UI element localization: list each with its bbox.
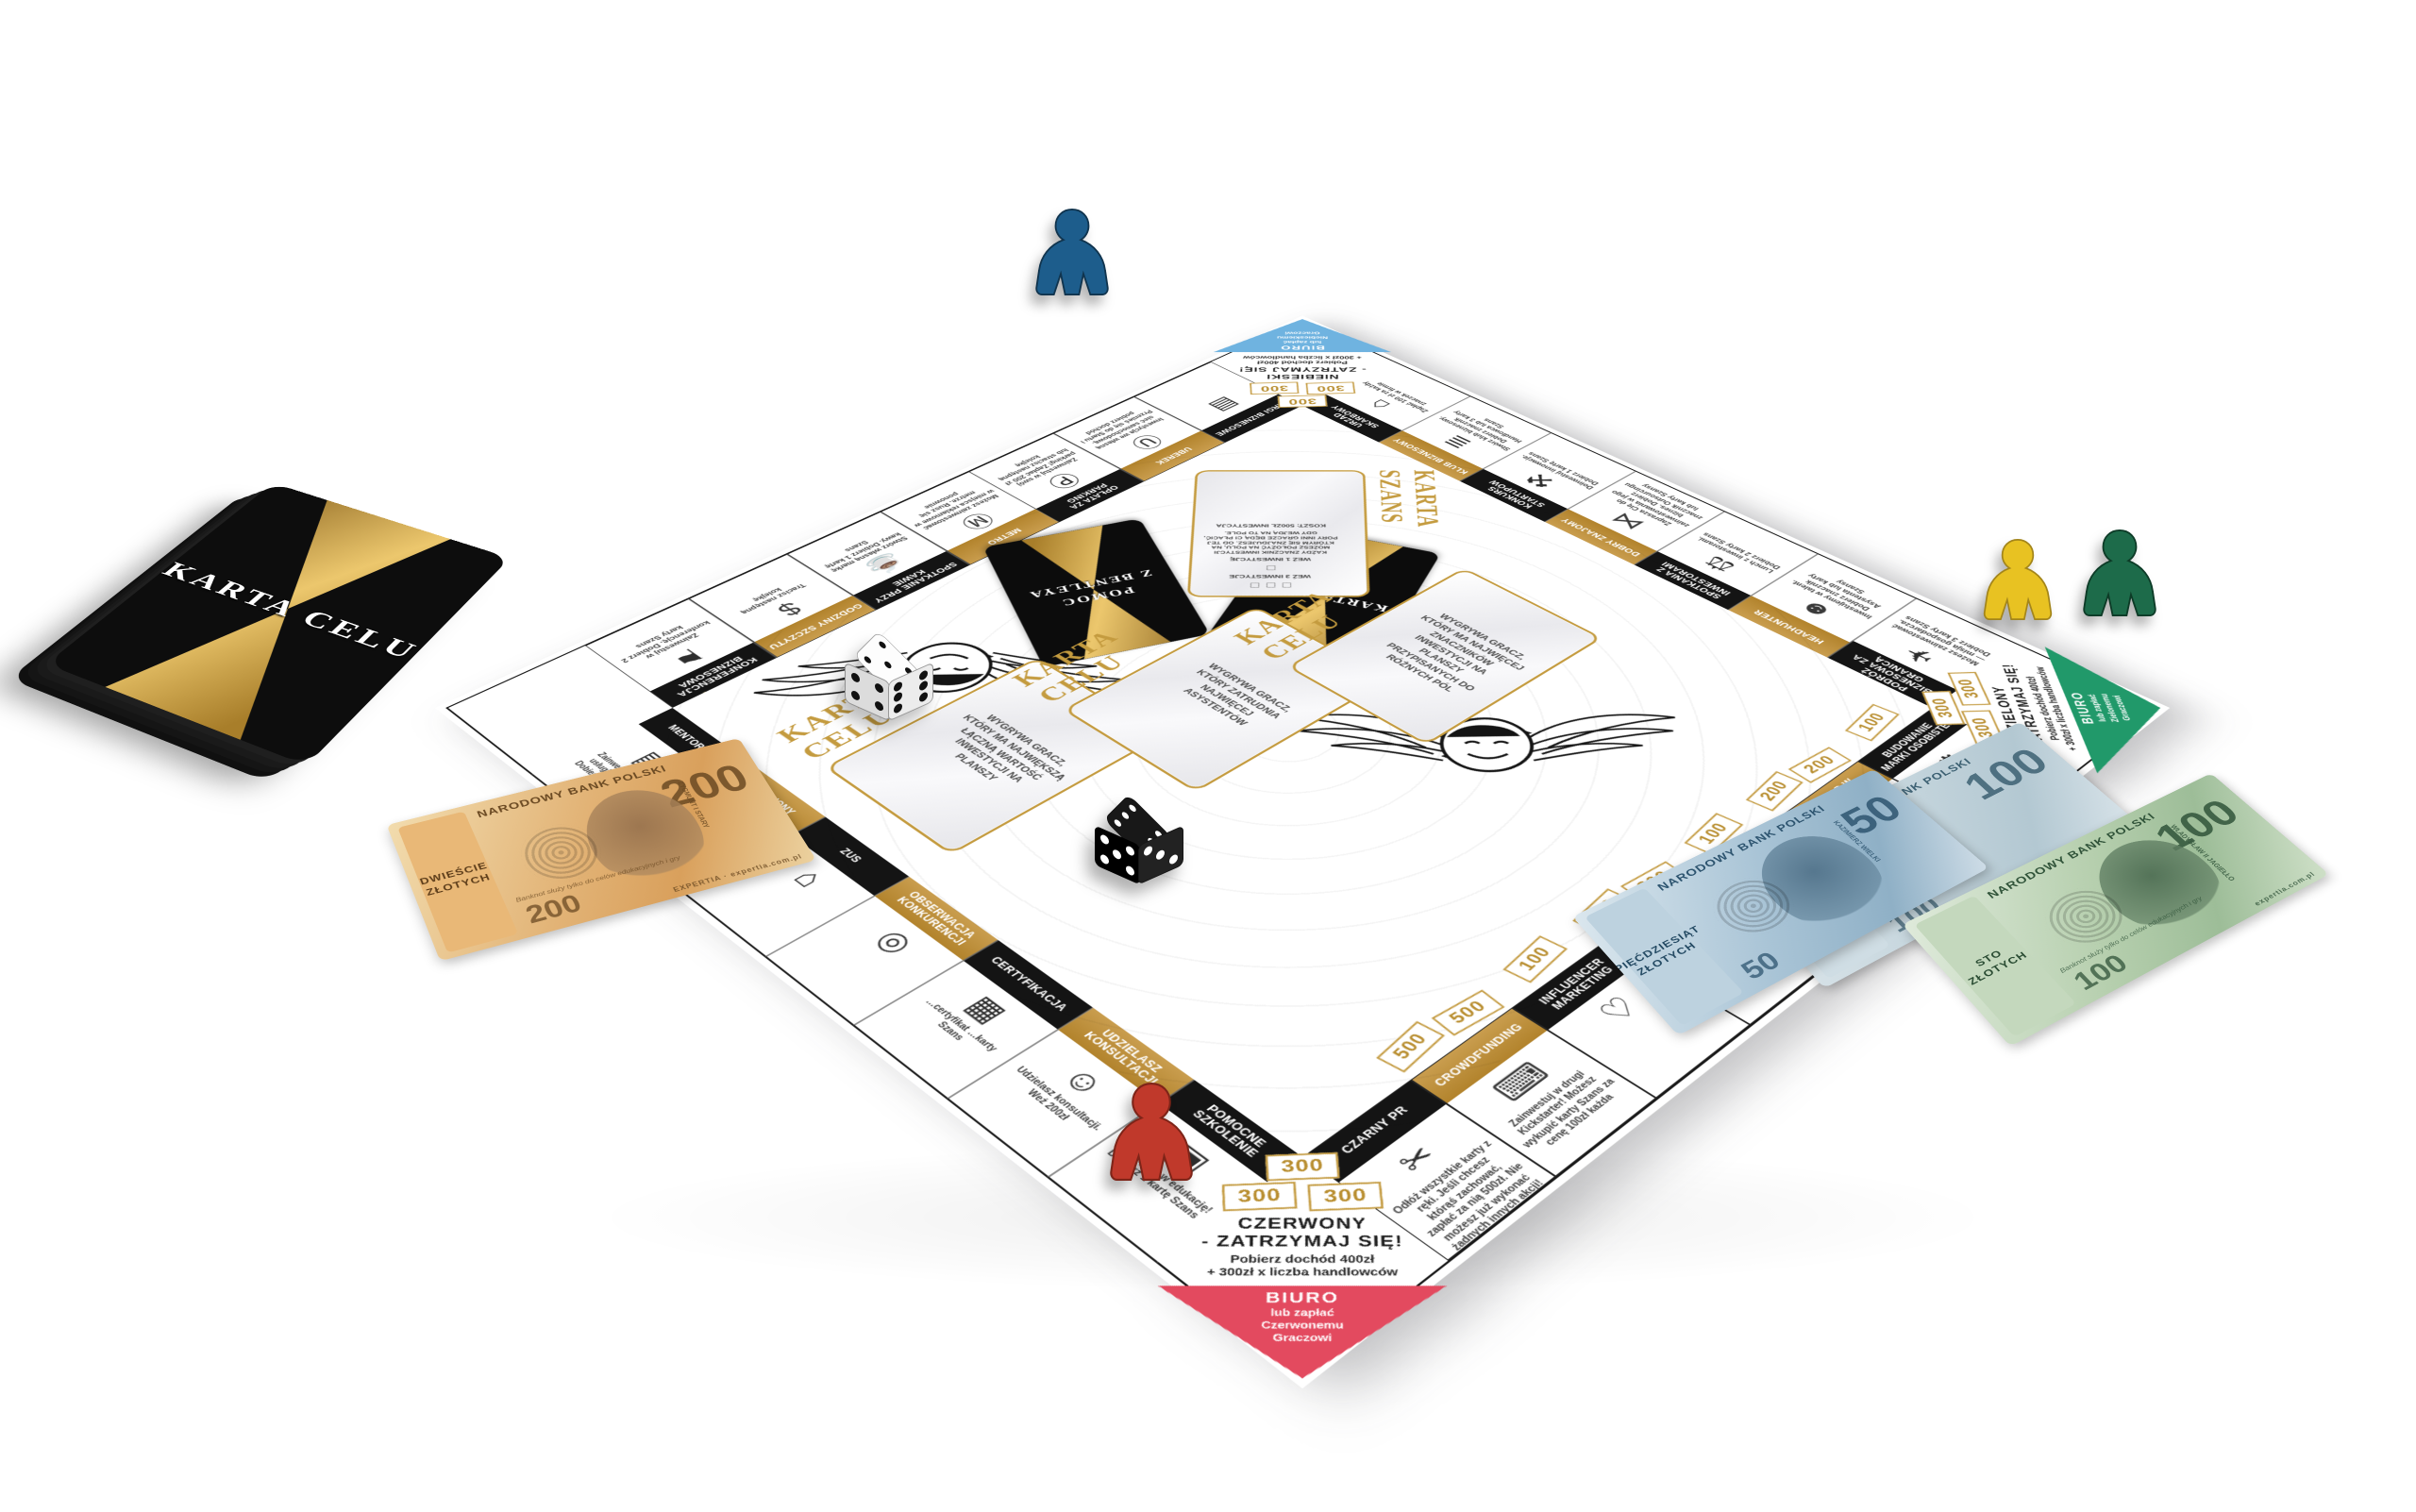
biuro-pay: lub zapłać Niebieskiemu Graczowi bbox=[1214, 330, 1391, 344]
biuro-label: BIURO bbox=[1156, 1290, 1449, 1307]
szans-line: WEŹ 1 INWESTYCJĘ bbox=[1230, 557, 1311, 562]
corner-title: CZERWONY - ZATRZYMAJ SIĘ! bbox=[1201, 1215, 1403, 1250]
board-center: POMOC Z BENTLEYA KARTA CELU KARTA SZANS … bbox=[672, 406, 1932, 1157]
red-meeple[interactable] bbox=[1102, 1076, 1200, 1187]
value-badge: 300 bbox=[1221, 1182, 1297, 1211]
denomination-text: DWIEŚCIE ZŁOTYCH bbox=[397, 812, 518, 953]
corner-niebieski-biuro[interactable]: 300 300 300 NIEBIESKI - ZATRZYMAJ SIĘ! P… bbox=[1211, 321, 1393, 406]
yellow-meeple[interactable] bbox=[1977, 533, 2058, 626]
value-badge: 300 bbox=[1307, 1182, 1384, 1211]
value-badges: 300 300 300 bbox=[1221, 1153, 1383, 1210]
investment-square-icon: □ bbox=[1265, 563, 1275, 572]
szans-body: KAŻDY ZNACZNIK INWESTYCJI MOŻESZ POŁOŻYĆ… bbox=[1201, 530, 1340, 555]
value-badges: 300 300 300 bbox=[1250, 382, 1356, 407]
note-value: 100 bbox=[2067, 949, 2135, 997]
deck-title: KARTA CELU bbox=[46, 483, 511, 765]
note-value: 50 bbox=[1830, 787, 1913, 843]
tabletop-scene: KONFERENCJA BIZNESOWA ⚑ Zainwestuj w kon… bbox=[0, 0, 2416, 1444]
corner-title: NIEBIESKI - ZATRZYMAJ SIĘ! bbox=[1238, 366, 1367, 380]
biuro-triangle: BIURO lub zapłać Niebieskiemu Graczowi bbox=[1213, 319, 1391, 352]
biuro-pay: lub zapłać Czerwonemu Graczowi bbox=[1154, 1307, 1451, 1345]
winged-face-logo bbox=[1280, 704, 1703, 789]
karta-celu-deck[interactable]: KARTA CELU bbox=[46, 483, 511, 765]
value-badge: 300 bbox=[1250, 382, 1300, 395]
value-badge: 300 bbox=[1305, 382, 1355, 395]
note-value: 100 bbox=[1953, 740, 2059, 808]
szans-cost: KOSZT: 500ZŁ INWESTYCJA bbox=[1216, 523, 1326, 528]
slot-label: KARTA SZANS bbox=[1372, 470, 1450, 563]
corner-czerwony-biuro[interactable]: 300 300 300 CZERWONY - ZATRZYMAJ SIĘ! Po… bbox=[1157, 1157, 1449, 1374]
value-badge: 300 bbox=[1265, 1152, 1340, 1182]
note-value: 50 bbox=[1735, 947, 1787, 985]
value-badge: 300 bbox=[1277, 395, 1327, 408]
investment-squares-icon: □ □ □ bbox=[1249, 580, 1291, 589]
szans-line: WEŹ 3 INWESTYCJE bbox=[1229, 574, 1311, 579]
biuro-label: BIURO bbox=[1214, 344, 1392, 351]
green-meeple[interactable] bbox=[2076, 524, 2163, 622]
corner-income: Pobierz dochód 400zł + 300zł x liczba ha… bbox=[1160, 1254, 1444, 1280]
brand-mark: expertia.com.pl bbox=[2253, 870, 2317, 907]
blue-meeple[interactable] bbox=[1029, 203, 1116, 301]
biuro-triangle: BIURO lub zapłać Czerwonemu Graczowi bbox=[1152, 1285, 1453, 1378]
corner-income: Pobierz dochód 400zł + 300zł x liczba ha… bbox=[1214, 354, 1390, 363]
